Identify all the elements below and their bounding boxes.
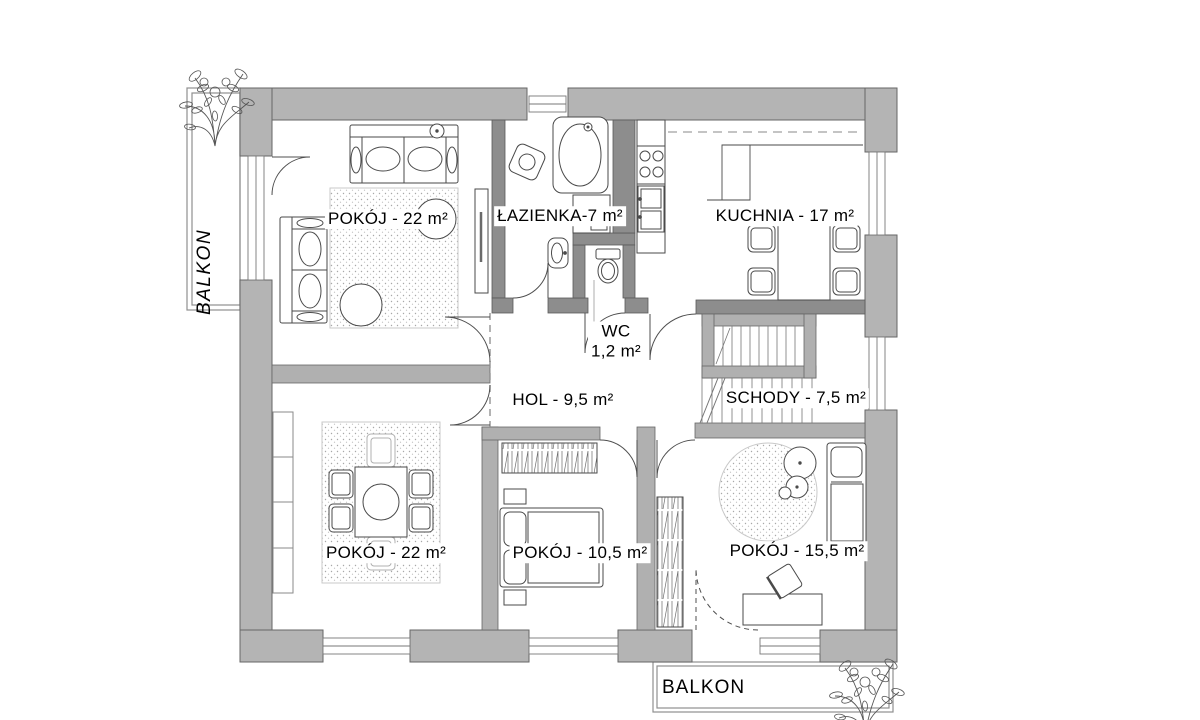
bedroom-small-furniture bbox=[500, 443, 603, 605]
bedroom-right-furniture bbox=[657, 443, 866, 627]
door-bedroom-small bbox=[600, 440, 637, 477]
room-label-bathroom: ŁAZIENKA-7 m² bbox=[494, 206, 626, 226]
balcony-door-living bbox=[272, 157, 310, 195]
balcony-bottom-label: BALKON bbox=[662, 677, 745, 699]
door-bathroom bbox=[513, 263, 548, 298]
desk bbox=[743, 594, 822, 625]
toilet bbox=[596, 249, 620, 283]
sofa bbox=[280, 217, 327, 323]
door-hall-dining bbox=[450, 385, 490, 425]
wardrobe bbox=[502, 443, 597, 473]
corner-counter bbox=[707, 145, 863, 200]
dining-room-furniture bbox=[273, 412, 440, 593]
room-label-dining: POKÓJ - 22 m² bbox=[323, 543, 449, 563]
kitchen-table bbox=[778, 223, 830, 300]
tv-unit bbox=[475, 189, 488, 293]
single-bed bbox=[827, 443, 866, 545]
pouf bbox=[340, 284, 382, 326]
side-table bbox=[430, 124, 444, 138]
room-label-bedroom-small: POKÓJ - 10,5 m² bbox=[510, 543, 651, 563]
door-bedroom-right bbox=[657, 440, 695, 478]
dining-table bbox=[355, 467, 407, 537]
room-label-living: POKÓJ - 22 m² bbox=[325, 209, 451, 229]
balcony-left-label: BALKON bbox=[194, 229, 216, 315]
nightstand bbox=[504, 489, 526, 504]
nightstand bbox=[504, 590, 526, 605]
floor-plan: POKÓJ - 22 m² ŁAZIENKA-7 m² KUCHNIA - 17… bbox=[0, 0, 1200, 720]
wc-name: WC bbox=[602, 321, 631, 340]
bathtub bbox=[553, 117, 608, 193]
room-label-hall: HOL - 9,5 m² bbox=[509, 390, 616, 410]
room-label-stairs: SCHODY - 7,5 m² bbox=[723, 388, 869, 408]
door-kitchen bbox=[650, 314, 696, 360]
washbasin bbox=[548, 238, 568, 268]
room-label-wc: WC1,2 m² bbox=[588, 321, 644, 360]
wc-area: 1,2 m² bbox=[591, 341, 641, 361]
room-label-bedroom-right: POKÓJ - 15,5 m² bbox=[727, 541, 868, 561]
washing-machine bbox=[507, 142, 547, 182]
wardrobe bbox=[657, 497, 683, 627]
shelf-unit bbox=[273, 412, 293, 593]
room-label-kitchen: KUCHNIA - 17 m² bbox=[713, 206, 858, 226]
